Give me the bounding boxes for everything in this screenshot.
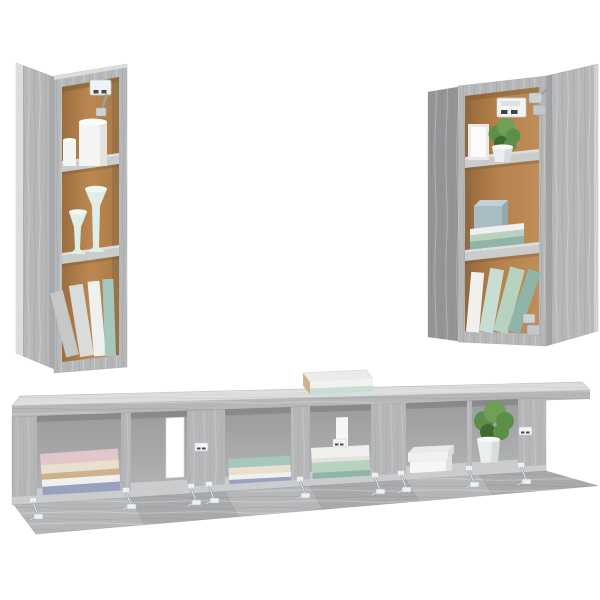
mount-bracket (195, 443, 208, 451)
right-wall-cabinet (428, 64, 598, 346)
right-cabinet-open-door (546, 64, 598, 346)
picture-frame (468, 124, 489, 160)
left-wall-cabinet (16, 63, 127, 373)
mount-bracket (333, 439, 346, 447)
right-cabinet-bracket (497, 98, 526, 117)
mount-bracket (519, 427, 532, 435)
bench-compartment-3 (225, 407, 292, 490)
product-image (0, 0, 600, 600)
left-cabinet-open-door (16, 63, 54, 369)
tv-bench (12, 370, 598, 534)
bench-top-books (303, 370, 373, 395)
bench-compartment-2 (131, 411, 187, 490)
furniture-illustration (0, 0, 600, 600)
bench-compartment-1 (37, 413, 121, 500)
bench-compartment-6 (472, 399, 518, 469)
wall-gap (166, 417, 184, 478)
door-hinge (523, 314, 535, 323)
